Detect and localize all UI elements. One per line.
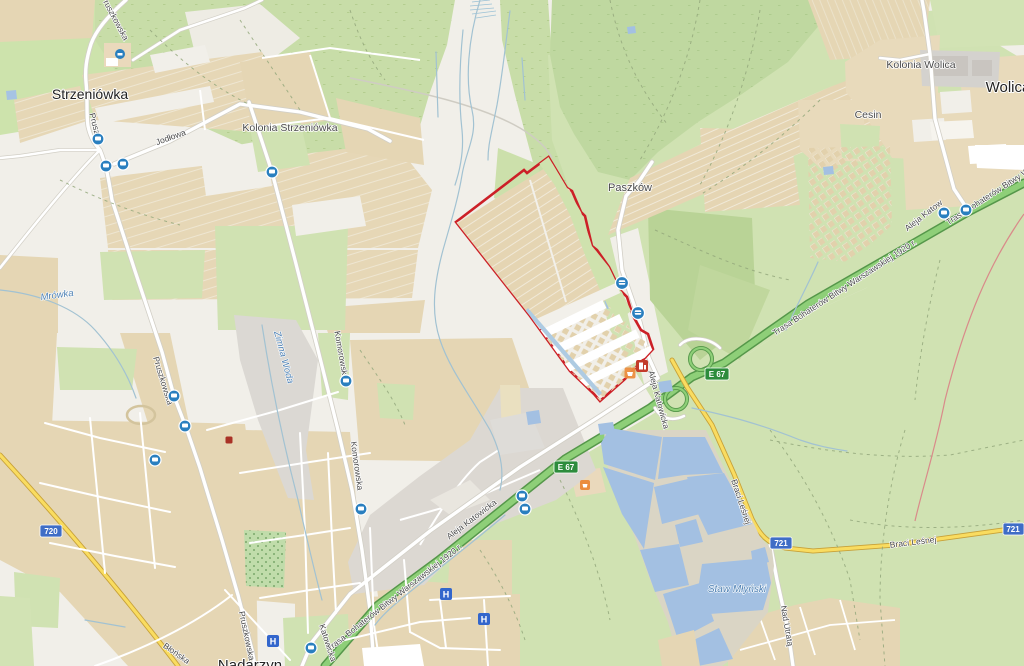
svg-text:Strzeniówka: Strzeniówka bbox=[52, 86, 128, 102]
svg-text:E 67: E 67 bbox=[558, 463, 575, 472]
svg-text:Paszków: Paszków bbox=[608, 182, 652, 194]
svg-text:Wolica: Wolica bbox=[986, 79, 1024, 96]
svg-text:721: 721 bbox=[1006, 525, 1020, 534]
svg-text:Staw Młyński: Staw Młyński bbox=[708, 584, 767, 595]
svg-text:H: H bbox=[481, 615, 488, 625]
svg-text:H: H bbox=[443, 590, 450, 600]
svg-text:721: 721 bbox=[774, 539, 788, 548]
svg-text:E 67: E 67 bbox=[709, 370, 726, 379]
svg-text:H: H bbox=[270, 637, 277, 647]
svg-text:Kolonia Wolica: Kolonia Wolica bbox=[886, 59, 955, 71]
svg-text:Cesin: Cesin bbox=[855, 109, 882, 121]
svg-text:Kolonia Strzeniówka: Kolonia Strzeniówka bbox=[242, 122, 337, 134]
svg-text:720: 720 bbox=[44, 527, 58, 536]
